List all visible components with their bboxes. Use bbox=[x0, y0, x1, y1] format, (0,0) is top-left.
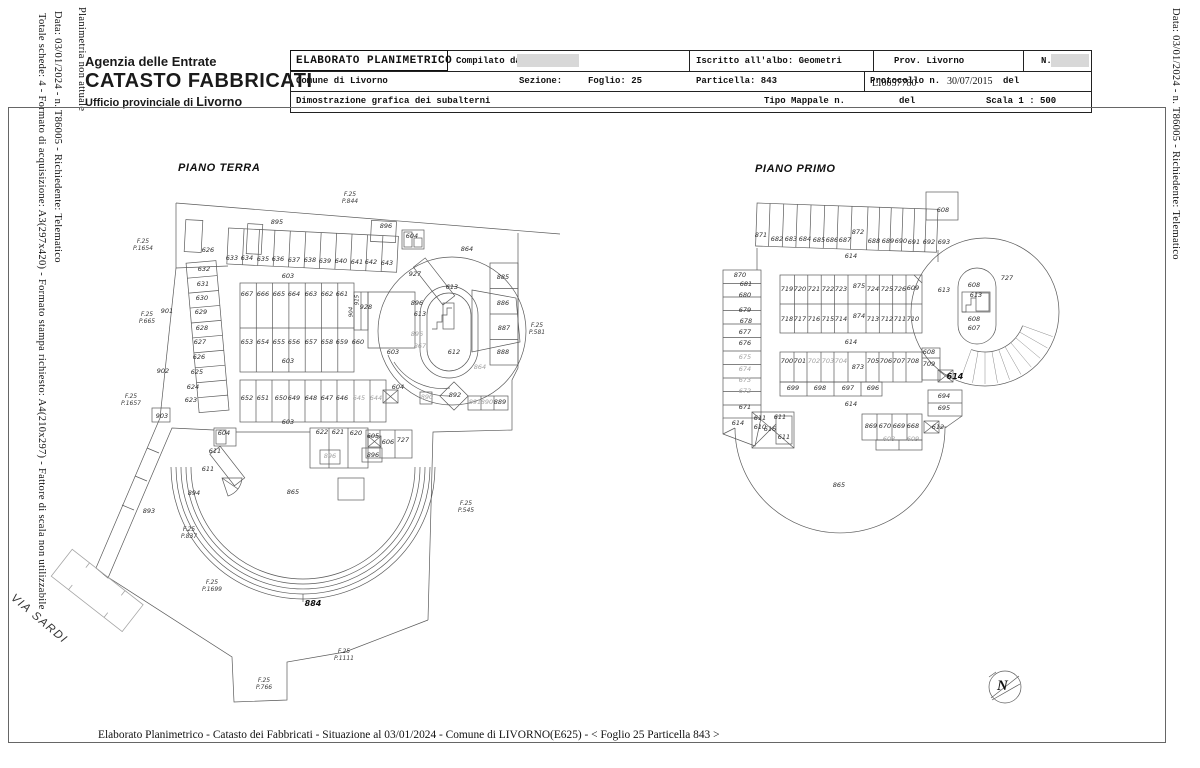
plan-label: 608 bbox=[968, 316, 980, 324]
plan-label: 685 bbox=[813, 237, 825, 245]
plan-label: 693 bbox=[938, 239, 950, 247]
plan-label: 725 bbox=[881, 286, 893, 294]
plan-label: 721 bbox=[808, 286, 820, 294]
plan-label: 872 bbox=[852, 229, 864, 237]
plan-label: 608 bbox=[883, 436, 895, 444]
plan-label: 611 bbox=[754, 415, 766, 423]
plan-label: 709 bbox=[923, 361, 935, 369]
plan-label: 707 bbox=[893, 358, 905, 366]
plan-label: 689 bbox=[882, 238, 894, 246]
plan-label: 699 bbox=[787, 385, 799, 393]
plan-label: 614 bbox=[947, 372, 964, 382]
plan-label: 613 bbox=[938, 287, 950, 295]
elaborato-planimetrico-page: { "margins": { "left_note_1": "Planimetr… bbox=[0, 0, 1200, 768]
plan-label: 613 bbox=[970, 292, 982, 300]
plan-label: 609 bbox=[907, 285, 919, 293]
plan-label: 712 bbox=[881, 316, 893, 324]
plan-label: 611 bbox=[774, 414, 786, 422]
plan-label: 614 bbox=[732, 420, 744, 428]
plan-label: 718 bbox=[781, 316, 793, 324]
plan-label: 611 bbox=[778, 434, 790, 442]
plan-label: 873 bbox=[852, 364, 864, 372]
plan-label: 676 bbox=[739, 340, 751, 348]
plan-label: 700 bbox=[781, 358, 793, 366]
plan-label: 715 bbox=[822, 316, 834, 324]
plan-label: 674 bbox=[739, 366, 751, 374]
plan-label: 672 bbox=[739, 388, 751, 396]
plan-label: 871 bbox=[755, 232, 767, 240]
plan-label: 713 bbox=[867, 316, 879, 324]
plan-label: 724 bbox=[867, 286, 879, 294]
plan-label: 711 bbox=[894, 316, 906, 324]
plan-label: 714 bbox=[835, 316, 847, 324]
footer-note: Elaborato Planimetrico - Catasto dei Fab… bbox=[98, 729, 758, 741]
plan-label: 705 bbox=[867, 358, 879, 366]
plan-label: 684 bbox=[799, 236, 811, 244]
plan-label: 686 bbox=[826, 237, 838, 245]
plan-label: 701 bbox=[794, 358, 806, 366]
plan-label: 719 bbox=[781, 286, 793, 294]
plan-label: 865 bbox=[833, 482, 845, 490]
plan-label: 608 bbox=[937, 207, 949, 215]
plan-label: 722 bbox=[822, 286, 834, 294]
plan-label: 670 bbox=[879, 423, 891, 431]
plan-label: 612 bbox=[932, 424, 944, 432]
plan-label: 673 bbox=[739, 377, 751, 385]
plan-label: 687 bbox=[839, 237, 851, 245]
primo-labels: 8716826836846856866878726886896906916926… bbox=[0, 0, 1200, 768]
plan-label: 608 bbox=[923, 349, 935, 357]
plan-label: 609 bbox=[907, 436, 919, 444]
plan-label: 668 bbox=[907, 423, 919, 431]
plan-label: 870 bbox=[734, 272, 746, 280]
plan-label: 607 bbox=[968, 325, 980, 333]
plan-label: 614 bbox=[845, 253, 857, 261]
plan-label: 680 bbox=[739, 292, 751, 300]
plan-label: 697 bbox=[842, 385, 854, 393]
plan-label: 716 bbox=[808, 316, 820, 324]
plan-label: 702 bbox=[808, 358, 820, 366]
plan-label: 727 bbox=[1001, 275, 1013, 283]
plan-label: 717 bbox=[794, 316, 806, 324]
plan-label: 677 bbox=[739, 329, 751, 337]
plan-label: 694 bbox=[938, 393, 950, 401]
plan-label: 614 bbox=[845, 339, 857, 347]
plan-label: 679 bbox=[739, 307, 751, 315]
compass-north-letter: N bbox=[997, 678, 1008, 695]
plan-label: 869 bbox=[865, 423, 877, 431]
plan-label: 616 bbox=[764, 426, 776, 434]
plan-label: 710 bbox=[907, 316, 919, 324]
plan-label: 688 bbox=[868, 238, 880, 246]
plan-label: 614 bbox=[845, 401, 857, 409]
plan-label: 704 bbox=[835, 358, 847, 366]
plan-label: 720 bbox=[794, 286, 806, 294]
plan-label: 682 bbox=[771, 236, 783, 244]
plan-label: 681 bbox=[740, 281, 752, 289]
plan-label: 703 bbox=[822, 358, 834, 366]
plan-label: 723 bbox=[835, 286, 847, 294]
plan-label: 678 bbox=[740, 318, 752, 326]
plan-label: 671 bbox=[739, 404, 751, 412]
plan-label: 692 bbox=[923, 239, 935, 247]
plan-label: 726 bbox=[894, 286, 906, 294]
plan-label: 608 bbox=[968, 282, 980, 290]
plan-label: 690 bbox=[895, 238, 907, 246]
plan-label: 875 bbox=[853, 283, 865, 291]
plan-label: 675 bbox=[739, 354, 751, 362]
plan-label: 698 bbox=[814, 385, 826, 393]
plan-label: 669 bbox=[893, 423, 905, 431]
plan-label: 708 bbox=[907, 358, 919, 366]
plan-label: 706 bbox=[880, 358, 892, 366]
plan-label: 683 bbox=[785, 236, 797, 244]
plan-label: 874 bbox=[853, 313, 865, 321]
plan-label: 691 bbox=[908, 239, 920, 247]
plan-label: 695 bbox=[938, 405, 950, 413]
plan-label: 696 bbox=[867, 385, 879, 393]
